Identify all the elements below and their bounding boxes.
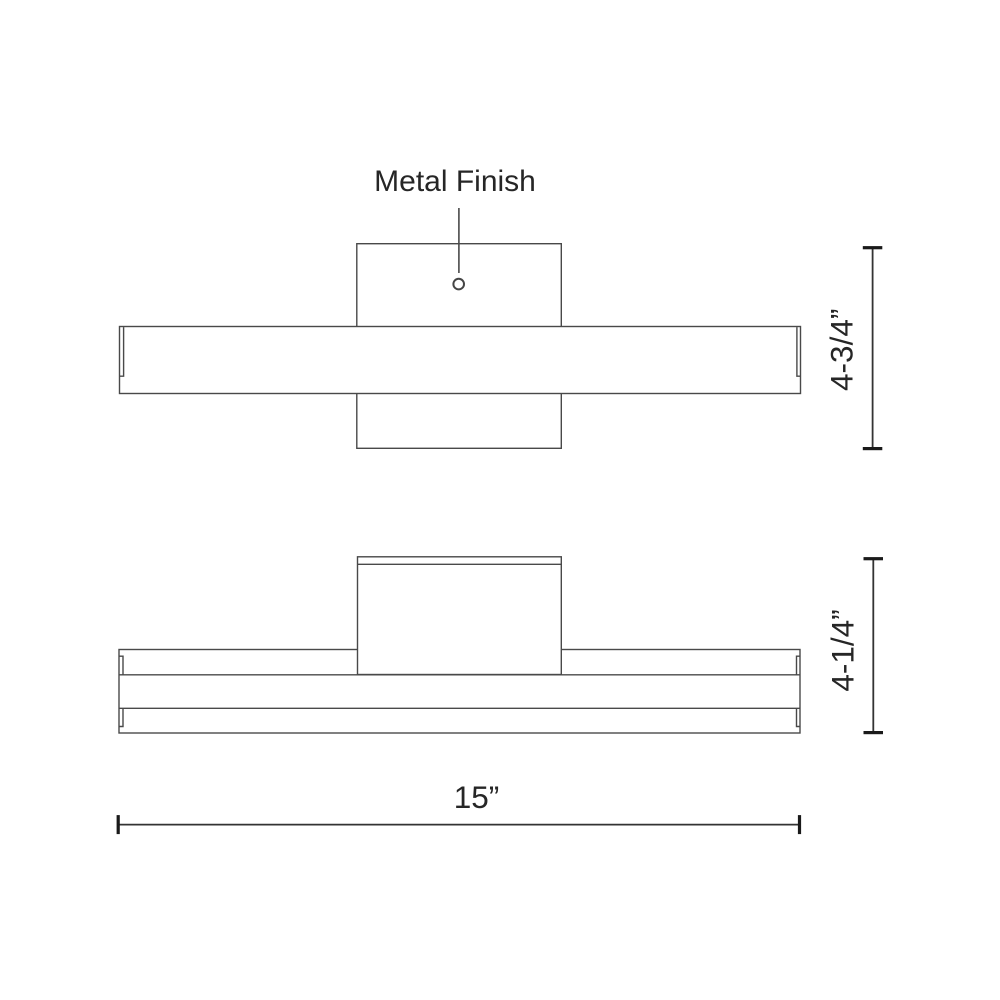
svg-text:15”: 15”	[454, 779, 500, 815]
svg-text:Metal Finish: Metal Finish	[374, 165, 536, 198]
svg-text:4-3/4”: 4-3/4”	[824, 309, 860, 391]
svg-text:4-1/4”: 4-1/4”	[825, 609, 861, 691]
